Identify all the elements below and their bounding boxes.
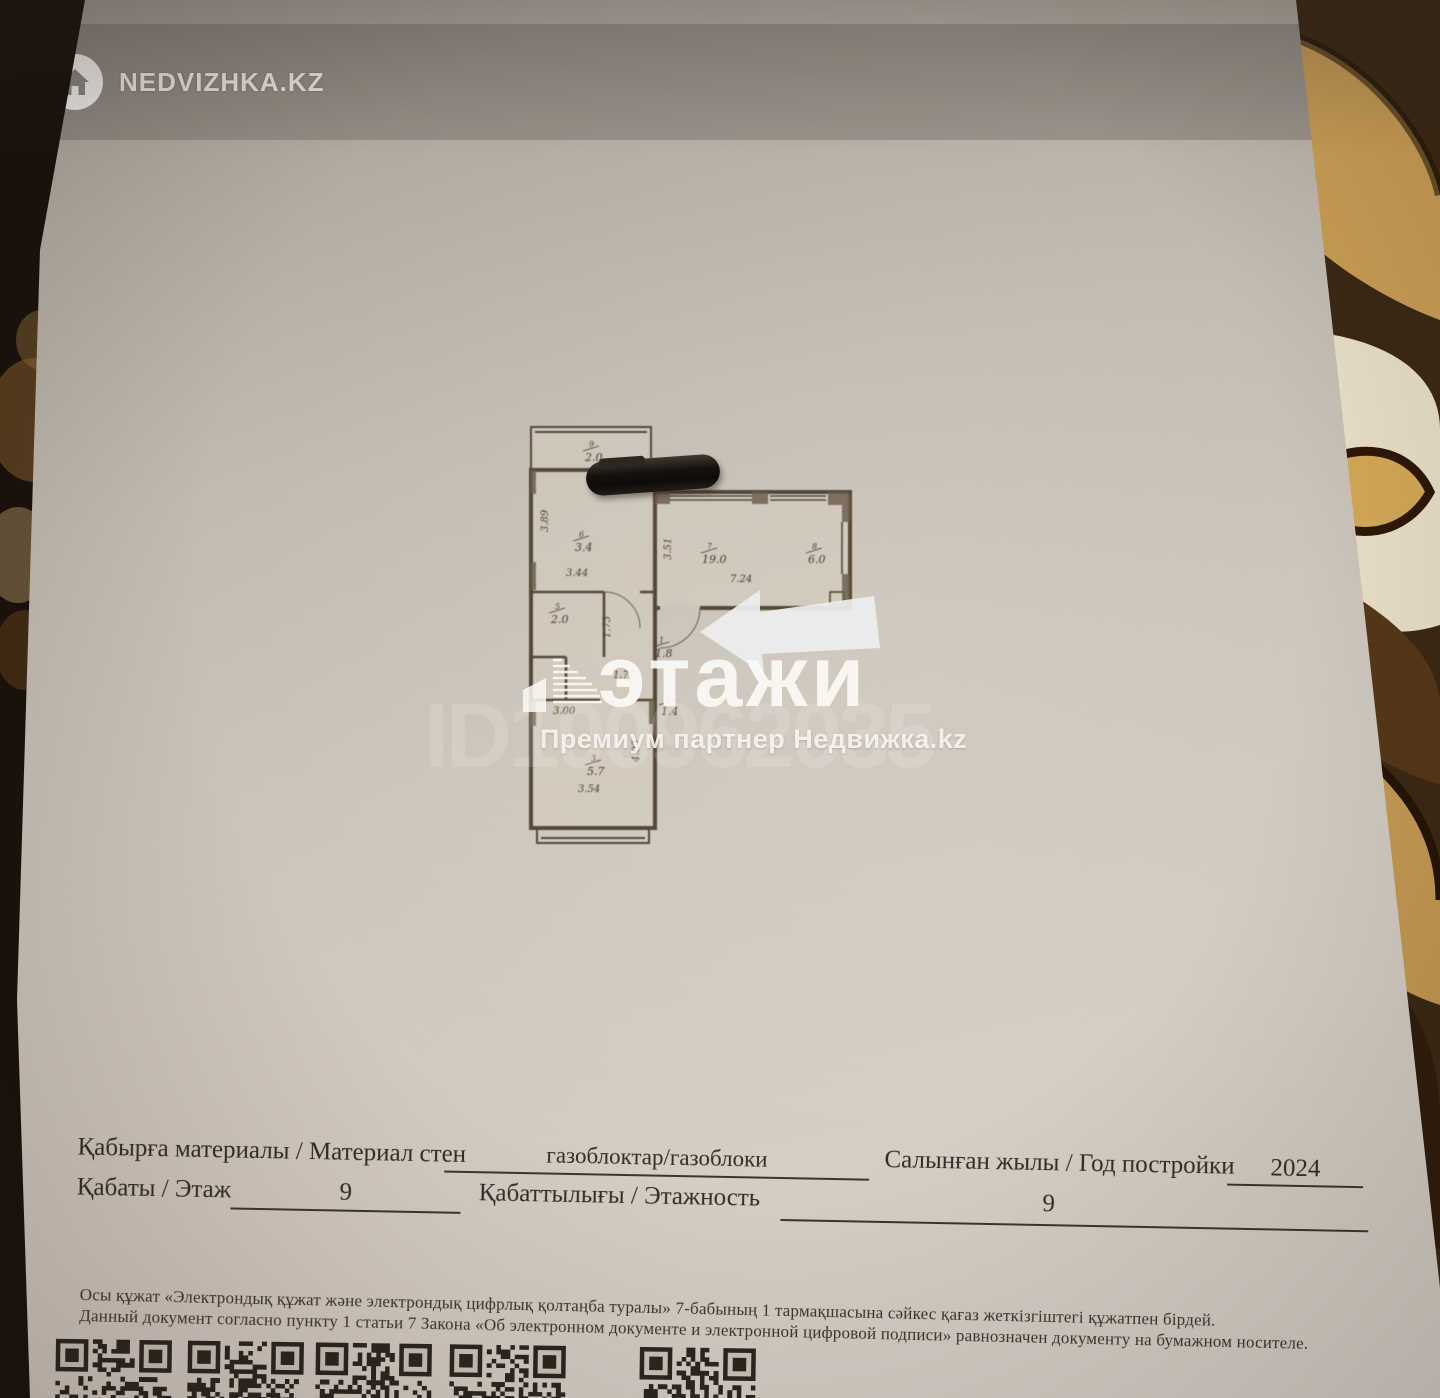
partner-watermark: Премиум партнер Недвижка.kz <box>540 724 967 755</box>
underline <box>780 1219 1368 1232</box>
year-built-label: Салынған жылы / Год постройки <box>884 1146 1235 1181</box>
qr-code <box>638 1347 756 1398</box>
underline <box>230 1207 460 1213</box>
floor-value: 9 <box>231 1176 461 1208</box>
logo-text: NEDVIZHKA.KZ <box>119 67 325 98</box>
wall-material-value: газоблоктар/газоблоки <box>444 1141 869 1175</box>
floor-label: Қабаты / Этаж <box>77 1173 232 1204</box>
qr-code <box>448 1344 566 1398</box>
svg-text:3.4: 3.4 <box>575 541 593 554</box>
svg-text:6.0: 6.0 <box>808 553 826 566</box>
storeys-value: 9 <box>1016 1190 1081 1219</box>
dim-3-51: 3.51 <box>663 538 674 560</box>
qr-code <box>186 1341 304 1398</box>
etagi-house-icon <box>518 650 602 714</box>
dim-3-89: 3.89 <box>540 509 551 532</box>
photo-of-floorplan-document: NEDVIZHKA.KZ <box>0 0 1440 1398</box>
year-built-value: 2024 <box>1231 1154 1360 1184</box>
svg-text:2.0: 2.0 <box>550 613 569 626</box>
wall-material-label: Қабырға материалы / Материал стен <box>77 1133 466 1168</box>
paper-document: NEDVIZHKA.KZ <box>0 0 1440 1398</box>
storeys-label: Қабаттылығы / Этажность <box>479 1179 761 1212</box>
nedvizhka-logo: NEDVIZHKA.KZ <box>47 54 325 110</box>
svg-text:19.0: 19.0 <box>702 553 727 566</box>
etagi-watermark: этажи <box>598 628 868 727</box>
underline <box>1227 1184 1363 1189</box>
document-form: Қабырға материалы / Материал стен газобл… <box>0 1126 1400 1253</box>
dim-3-44: 3.44 <box>566 568 588 579</box>
qr-code <box>54 1339 172 1398</box>
qr-code <box>314 1342 432 1398</box>
